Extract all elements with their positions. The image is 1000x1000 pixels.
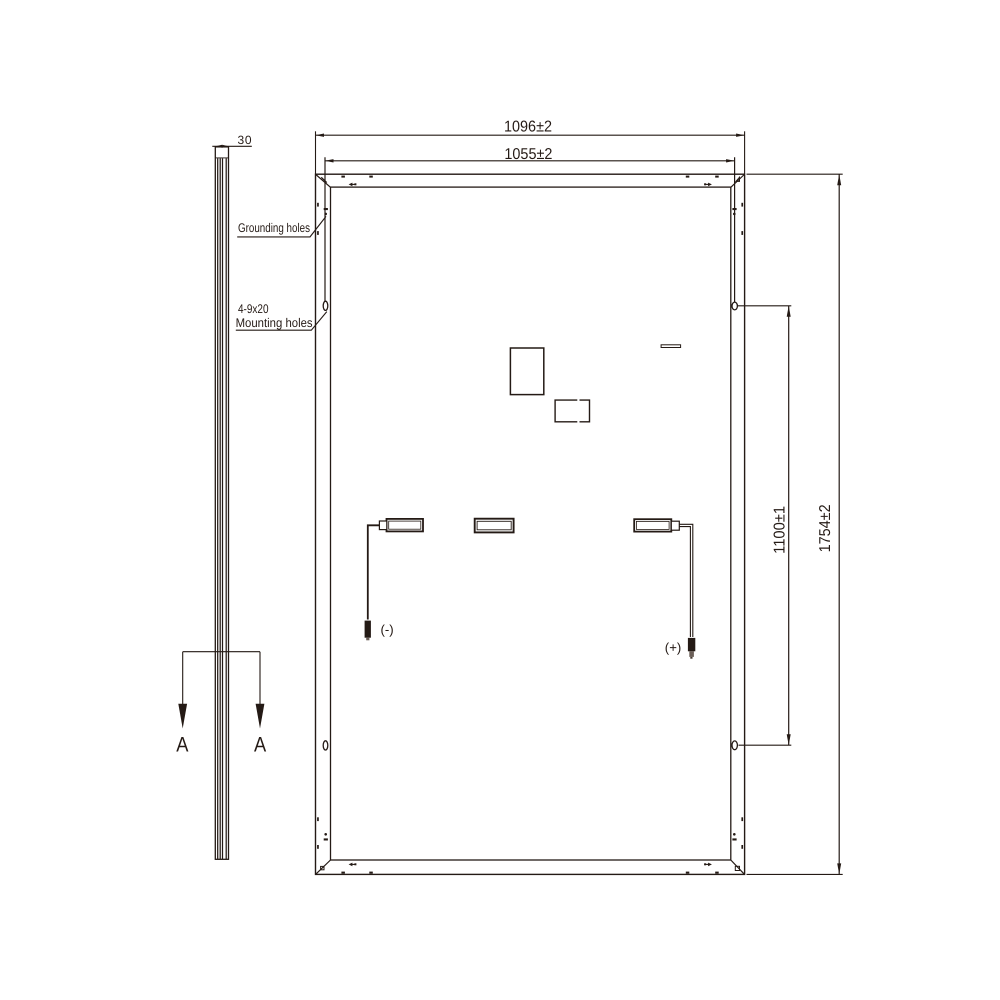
svg-text:30: 30: [238, 133, 252, 147]
svg-text:1055±2: 1055±2: [504, 146, 552, 163]
svg-text:(-): (-): [381, 622, 394, 637]
svg-text:1754±2: 1754±2: [817, 504, 834, 552]
svg-text:(+): (+): [665, 640, 681, 655]
svg-text:A: A: [176, 733, 188, 756]
svg-text:Mounting holes: Mounting holes: [236, 316, 313, 330]
svg-text:Grounding holes: Grounding holes: [238, 221, 310, 235]
svg-text:1100±1: 1100±1: [772, 506, 789, 554]
svg-text:1096±2: 1096±2: [504, 118, 552, 135]
svg-text:4-9x20: 4-9x20: [238, 302, 269, 316]
svg-text:A: A: [254, 733, 266, 756]
